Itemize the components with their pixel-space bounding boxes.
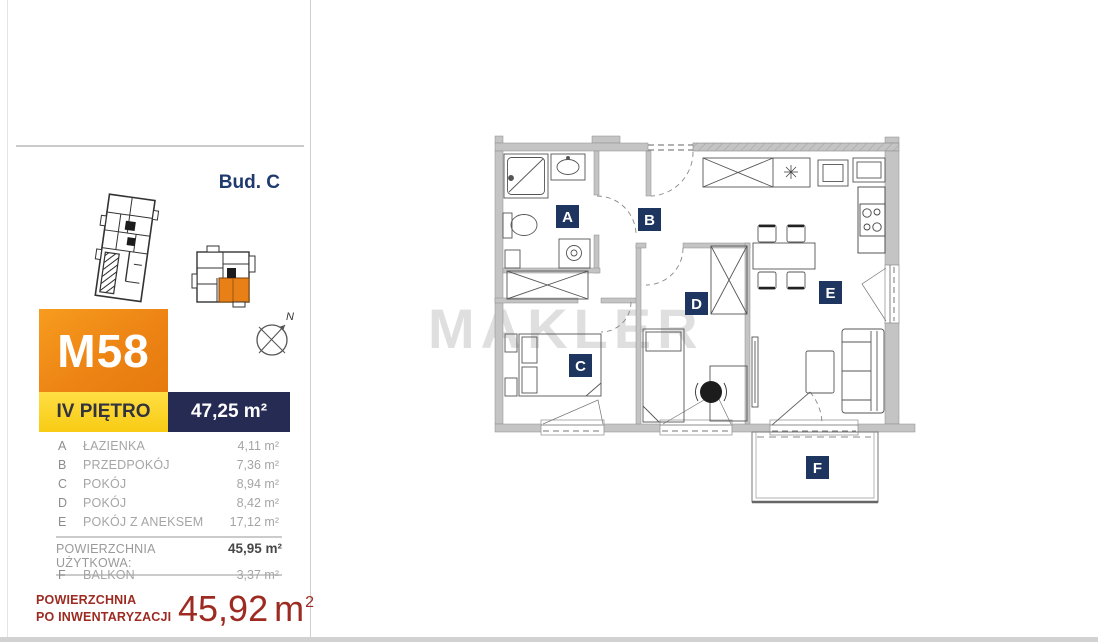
usable-area-value: 45,95 m² [228, 541, 282, 556]
cabinet-icon [853, 158, 885, 182]
page-bottom-strip [0, 637, 1098, 642]
room-label-e: E [819, 281, 842, 304]
sofa-icon [842, 329, 884, 413]
room-label-b: B [638, 208, 661, 231]
room-name: PRZEDPOKÓJ [83, 458, 237, 472]
room-area: 4,11 m² [238, 439, 279, 453]
wardrobe-icon [711, 246, 747, 314]
room-letter: D [58, 496, 83, 510]
table-row: D POKÓJ 8,42 m² [58, 496, 279, 515]
inventory-area-block: POWIERZCHNIA PO INWENTARYZACJI 45,92m2 [36, 588, 314, 630]
table-row: A ŁAZIENKA 4,11 m² [58, 439, 279, 458]
room-area: 3,37 m² [237, 568, 279, 582]
room-label-d: D [685, 292, 708, 315]
room-letter: E [58, 515, 83, 529]
floor-overview-thumbnail [189, 244, 259, 308]
table-row: B PRZEDPOKÓJ 7,36 m² [58, 458, 279, 477]
unit-id: M58 [57, 324, 149, 378]
kitchen-sink-icon [784, 165, 798, 179]
balcony-row: F BALKON 3,37 m² [58, 568, 279, 587]
room-label-a: A [556, 205, 579, 228]
room-area: 17,12 m² [230, 515, 279, 529]
room-letter: B [58, 458, 83, 472]
table-row: C POKÓJ 8,94 m² [58, 477, 279, 496]
svg-text:A: A [562, 209, 573, 226]
svg-text:E: E [825, 285, 835, 302]
washing-machine-icon [559, 239, 590, 268]
room-letter: F [58, 568, 83, 582]
room-name: POKÓJ [83, 477, 237, 491]
room-table: A ŁAZIENKA 4,11 m² B PRZEDPOKÓJ 7,36 m² … [58, 439, 279, 534]
table-row: E POKÓJ Z ANEKSEM 17,12 m² [58, 515, 279, 534]
sidebar-divider [16, 145, 304, 147]
sink-icon [551, 154, 585, 180]
usable-area-label: POWIERZCHNIA UŻYTKOWA: [56, 542, 228, 570]
coffee-table-icon [806, 351, 834, 393]
room-name: POKÓJ Z ANEKSEM [83, 515, 230, 529]
shower-icon [504, 154, 548, 198]
compass-icon: N [236, 306, 306, 366]
room-area: 8,42 m² [237, 496, 279, 510]
room-letter: A [58, 439, 83, 453]
room-area: 8,94 m² [237, 477, 279, 491]
floor-label: IV PIĘTRO [57, 401, 151, 423]
inventory-value: 45,92m2 [178, 588, 314, 630]
tall-shelf-icon [752, 337, 758, 407]
toilet-icon [503, 213, 537, 238]
compass-north-label: N [286, 311, 294, 323]
room-name: BALKON [83, 568, 237, 582]
building-overview-thumbnail [86, 193, 166, 305]
fridge-icon [818, 160, 848, 186]
sidebar: Bud. C [7, 0, 311, 642]
total-area-box: 47,25 m² [168, 392, 290, 432]
room-label-f: F [806, 456, 829, 479]
room-name: POKÓJ [83, 496, 237, 510]
room-area: 7,36 m² [237, 458, 279, 472]
dining-table-icon [753, 225, 815, 289]
room-letter: C [58, 477, 83, 491]
bathroom-shelf-icon [505, 250, 520, 268]
svg-text:D: D [691, 296, 702, 313]
svg-text:C: C [575, 358, 586, 375]
watermark: MAKLER [428, 297, 704, 360]
inventory-label: POWIERZCHNIA PO INWENTARYZACJI [36, 592, 178, 627]
unit-id-box: M58 [39, 309, 168, 392]
kitchen-counter-icon [703, 158, 810, 187]
hall-wardrobe-icon [507, 271, 588, 299]
building-label: Bud. C [219, 172, 280, 194]
room-label-c: C [569, 354, 592, 377]
svg-text:F: F [813, 460, 822, 477]
floor-box: IV PIĘTRO [39, 392, 168, 432]
stove-icon [858, 187, 885, 253]
total-area: 47,25 m² [191, 401, 267, 423]
svg-text:B: B [644, 212, 655, 229]
room-name: ŁAZIENKA [83, 439, 238, 453]
unit-card-page: Bud. C [0, 0, 1098, 642]
office-chair-icon [696, 381, 727, 403]
floor-plan: MAKLER [420, 128, 920, 518]
